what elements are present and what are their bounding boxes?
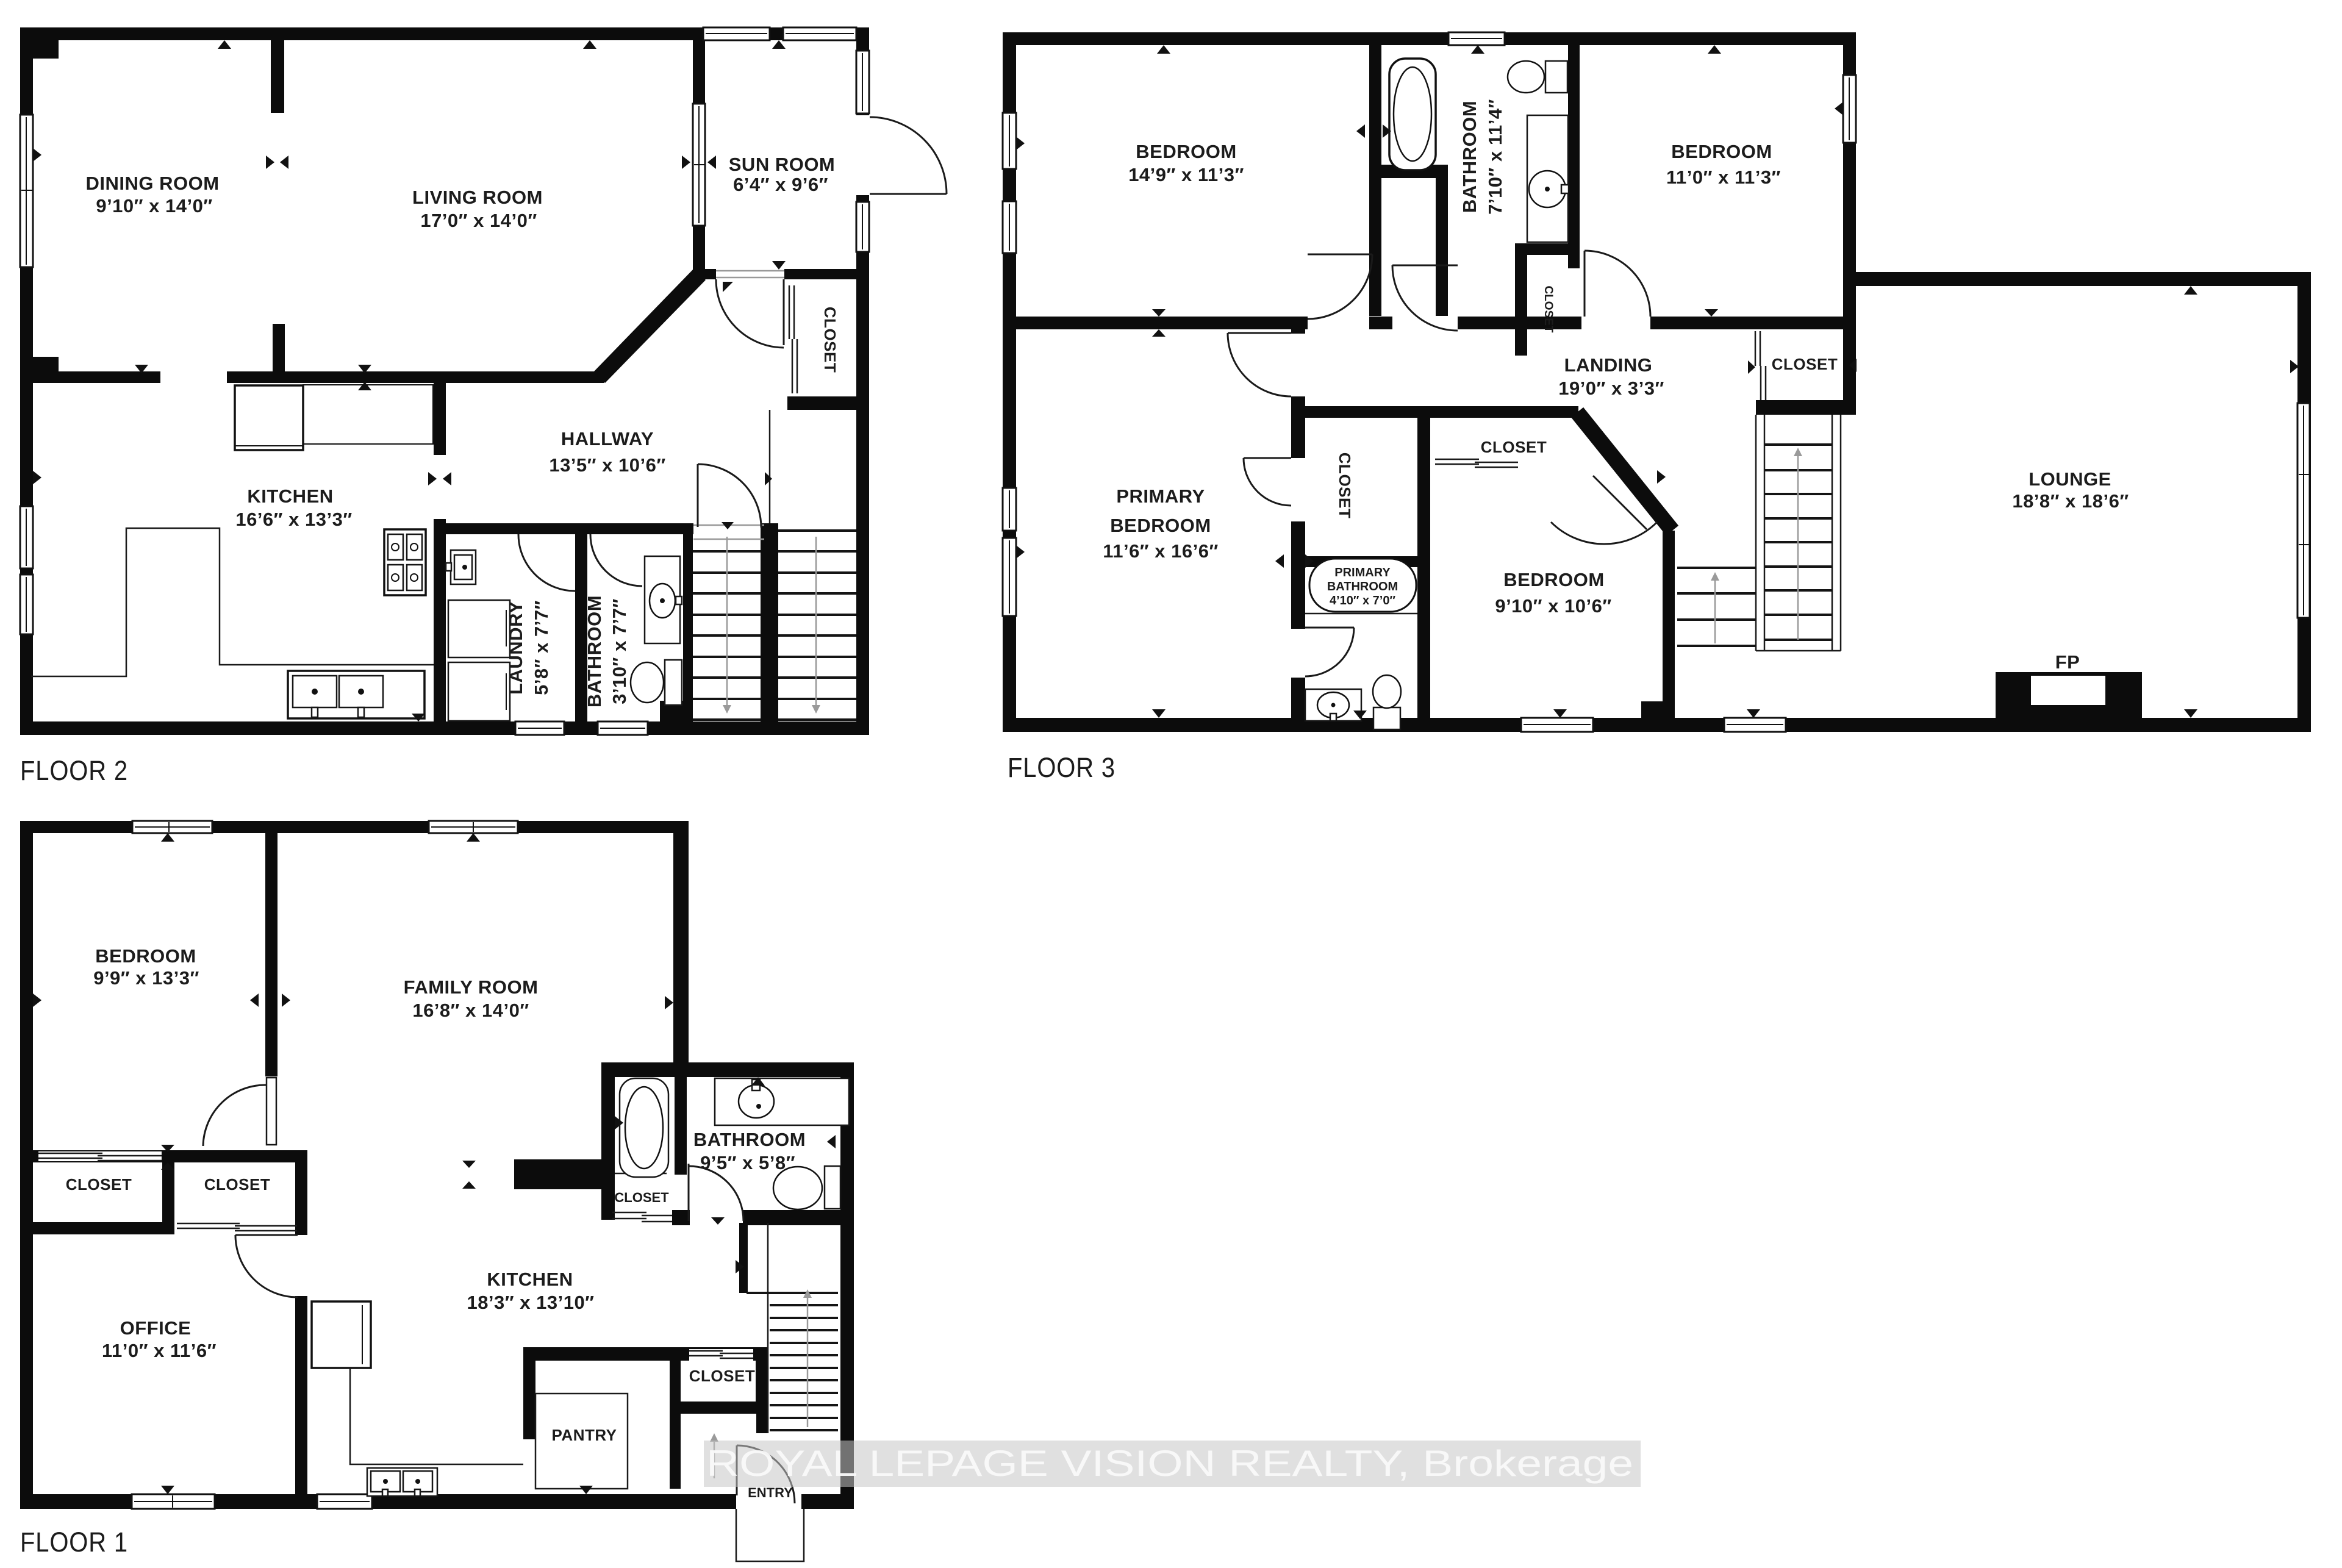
- svg-text:11’0″ x 11’3″: 11’0″ x 11’3″: [1666, 166, 1781, 188]
- svg-text:SUN ROOM: SUN ROOM: [729, 154, 836, 175]
- svg-text:KITCHEN: KITCHEN: [487, 1269, 573, 1290]
- svg-text:LAUNDRY: LAUNDRY: [505, 601, 526, 695]
- svg-text:BATHROOM: BATHROOM: [584, 595, 605, 707]
- svg-text:CLOSET: CLOSET: [1772, 355, 1838, 373]
- svg-text:CLOSET: CLOSET: [1481, 438, 1547, 456]
- svg-text:BEDROOM: BEDROOM: [95, 945, 196, 967]
- svg-text:FLOOR 2: FLOOR 2: [20, 755, 128, 786]
- svg-text:3’10″ x 7’7″: 3’10″ x 7’7″: [609, 598, 630, 704]
- svg-text:LOUNGE: LOUNGE: [2029, 468, 2111, 490]
- svg-text:19’0″ x 3’3″: 19’0″ x 3’3″: [1558, 378, 1664, 399]
- svg-text:FLOOR 3: FLOOR 3: [1008, 752, 1115, 783]
- svg-text:DINING ROOM: DINING ROOM: [85, 173, 219, 194]
- svg-text:9’10″ x 14’0″: 9’10″ x 14’0″: [96, 195, 212, 217]
- svg-text:PRIMARY: PRIMARY: [1334, 566, 1391, 579]
- svg-text:16’8″ x 14’0″: 16’8″ x 14’0″: [412, 1000, 529, 1021]
- svg-text:BEDROOM: BEDROOM: [1110, 515, 1211, 536]
- svg-text:BEDROOM: BEDROOM: [1503, 569, 1604, 590]
- svg-text:BEDROOM: BEDROOM: [1671, 141, 1772, 162]
- svg-text:BEDROOM: BEDROOM: [1136, 141, 1236, 162]
- svg-text:HALLWAY: HALLWAY: [561, 428, 654, 449]
- svg-text:KITCHEN: KITCHEN: [247, 485, 333, 507]
- svg-text:ENTRY: ENTRY: [748, 1485, 793, 1500]
- svg-text:CLOSET: CLOSET: [689, 1367, 755, 1385]
- svg-text:CLOSET: CLOSET: [66, 1175, 132, 1194]
- svg-text:CLOSET: CLOSET: [614, 1190, 669, 1205]
- svg-text:BATHROOM: BATHROOM: [1459, 101, 1480, 213]
- svg-text:CLOSET: CLOSET: [1336, 453, 1354, 518]
- svg-text:16’6″ x 13’3″: 16’6″ x 13’3″: [235, 509, 352, 530]
- svg-text:14’9″ x 11’3″: 14’9″ x 11’3″: [1128, 164, 1244, 185]
- svg-text:BATHROOM: BATHROOM: [1327, 580, 1398, 593]
- svg-text:9’9″ x 13’3″: 9’9″ x 13’3″: [93, 967, 199, 989]
- svg-text:9’5″ x 5’8″: 9’5″ x 5’8″: [700, 1152, 795, 1173]
- svg-text:18’3″ x 13’10″: 18’3″ x 13’10″: [467, 1292, 594, 1313]
- svg-text:FLOOR 1: FLOOR 1: [20, 1527, 128, 1558]
- svg-text:LIVING ROOM: LIVING ROOM: [412, 187, 543, 208]
- svg-text:17’0″ x 14’0″: 17’0″ x 14’0″: [420, 210, 537, 231]
- svg-text:CLOSET: CLOSET: [204, 1175, 270, 1194]
- svg-text:6’4″ x 9’6″: 6’4″ x 9’6″: [733, 174, 828, 195]
- svg-text:11’6″ x 16’6″: 11’6″ x 16’6″: [1103, 540, 1219, 562]
- svg-text:13’5″ x 10’6″: 13’5″ x 10’6″: [549, 454, 665, 476]
- svg-text:4’10″ x 7’0″: 4’10″ x 7’0″: [1330, 594, 1396, 607]
- svg-text:ROYAL LEPAGE VISION REALTY, Br: ROYAL LEPAGE VISION REALTY, Brokerage: [706, 1443, 1633, 1484]
- svg-text:9’10″ x 10’6″: 9’10″ x 10’6″: [1495, 595, 1611, 617]
- svg-text:OFFICE: OFFICE: [120, 1317, 192, 1339]
- svg-text:BATHROOM: BATHROOM: [693, 1129, 806, 1150]
- svg-text:FAMILY ROOM: FAMILY ROOM: [404, 976, 539, 998]
- svg-text:PRIMARY: PRIMARY: [1116, 485, 1205, 507]
- svg-text:7’10″ x 11’4″: 7’10″ x 11’4″: [1484, 99, 1506, 215]
- svg-text:CLOSET: CLOSET: [1542, 285, 1555, 332]
- svg-text:11’0″ x 11’6″: 11’0″ x 11’6″: [102, 1340, 217, 1361]
- svg-text:5’8″ x 7’7″: 5’8″ x 7’7″: [531, 600, 552, 695]
- svg-text:LANDING: LANDING: [1564, 354, 1653, 376]
- svg-text:CLOSET: CLOSET: [821, 307, 839, 373]
- svg-text:FP: FP: [2055, 651, 2080, 673]
- svg-text:18’8″ x 18’6″: 18’8″ x 18’6″: [2012, 490, 2129, 512]
- svg-text:PANTRY: PANTRY: [552, 1426, 617, 1444]
